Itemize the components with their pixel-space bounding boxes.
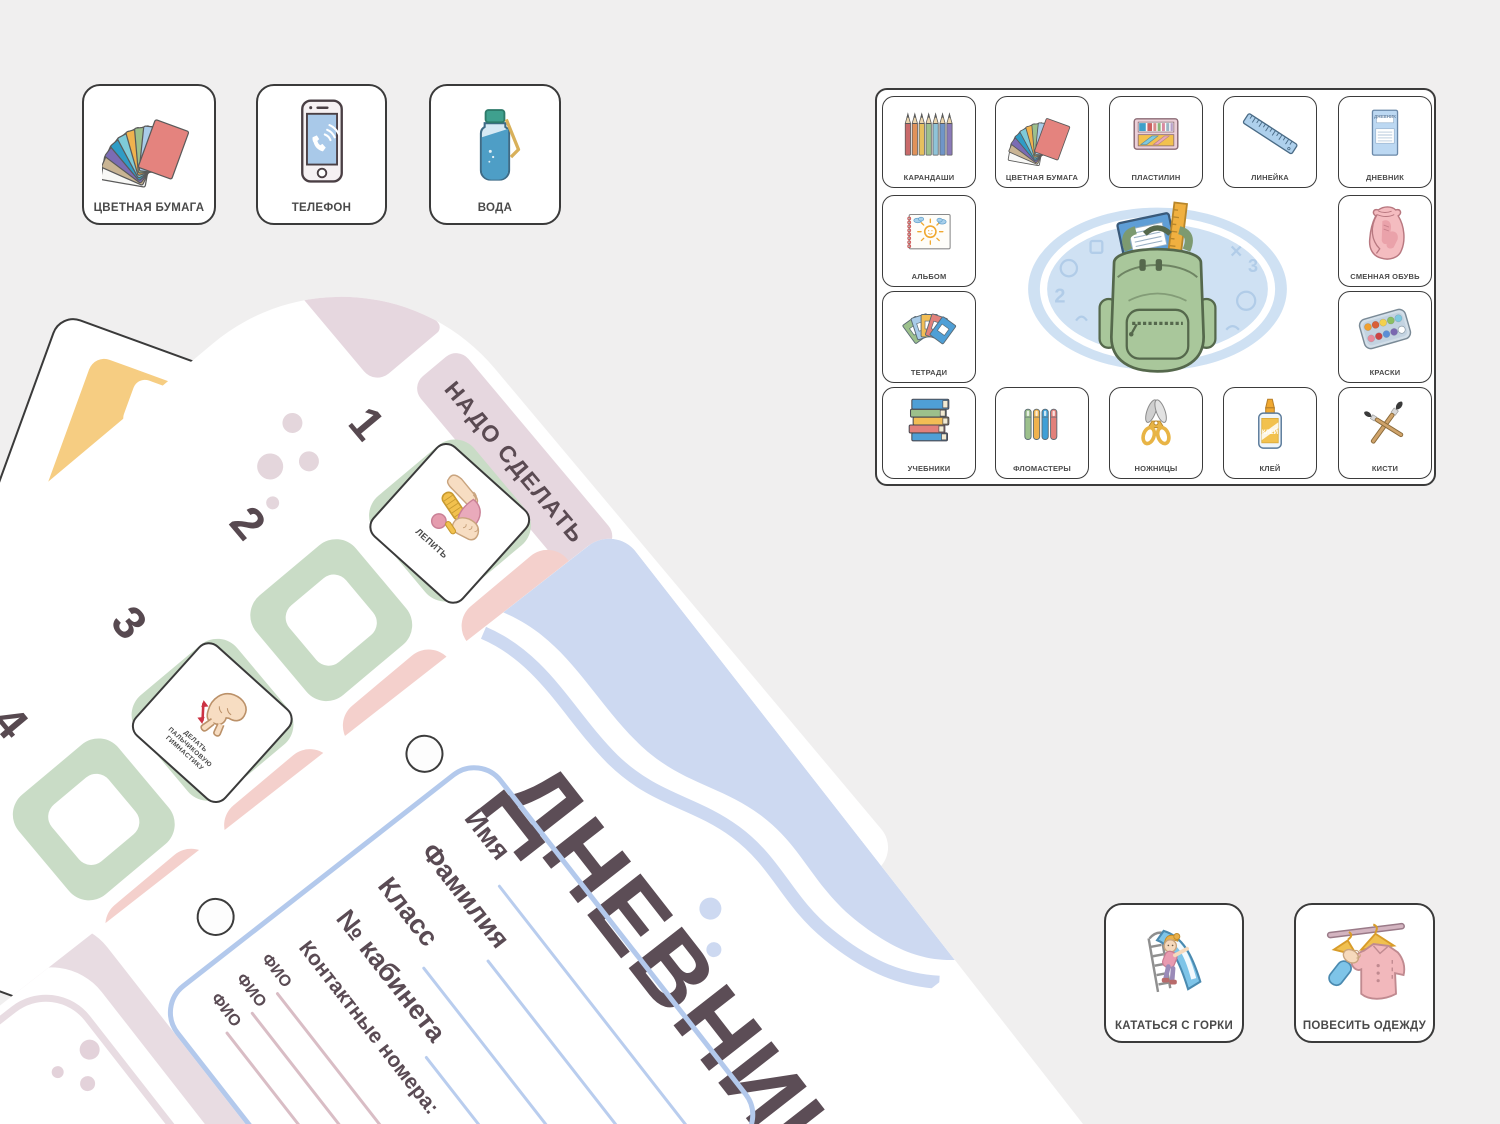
card-label: ДНЕВНИК — [1339, 173, 1431, 182]
card-label: КАРАНДАШИ — [883, 173, 975, 182]
header-corner-piece — [275, 215, 443, 385]
diary-notebook-text: ДНЕВНИК — [1339, 114, 1431, 119]
slide-icon — [1112, 909, 1236, 1011]
punch-hole — [189, 890, 242, 943]
colored-paper-icon — [90, 90, 208, 193]
fio-label: ФИО — [232, 971, 269, 1012]
diary-notebook-icon — [1347, 99, 1423, 169]
colored-paper-icon — [1004, 99, 1080, 169]
fio-label: ФИО — [207, 990, 244, 1031]
card-label: ФЛОМАСТЕРЫ — [996, 464, 1088, 473]
card-label: ПОВЕСИТЬ ОДЕЖДУ — [1296, 1020, 1433, 1032]
card-label: НОЖНИЦЫ — [1110, 464, 1202, 473]
ruler-icon — [1232, 99, 1308, 169]
poster-card-brushes: КИСТИ — [1338, 387, 1432, 479]
fio-label: ФИО — [257, 951, 294, 992]
glue-icon — [1232, 390, 1308, 460]
school-supplies-poster: 2 3 КАРАНДАШИ ЦВЕТНАЯ БУМАГА ПЛАСТИЛИН — [875, 88, 1436, 486]
punch-hole — [398, 727, 451, 780]
card-label: ТЕТРАДИ — [883, 368, 975, 377]
phone-icon — [264, 90, 379, 193]
decor-dot — [278, 409, 306, 437]
field-name: Имя — [458, 804, 516, 867]
printables-collage: ЧЕТВЕРГ МЕСЯЦ ЧИСЛО 1 — [0, 0, 1500, 1124]
poster-card-glue: КЛЕЙ КЛЕЙ — [1223, 387, 1317, 479]
photo-card-phone: ТЕЛЕФОН — [256, 84, 387, 225]
card-label: ЦВЕТНАЯ БУМАГА — [84, 202, 214, 214]
decor-dot — [295, 447, 323, 475]
photo-card-water: ВОДА — [429, 84, 561, 225]
field-line — [486, 959, 653, 1124]
poster-card-scissors: НОЖНИЦЫ — [1109, 387, 1203, 479]
field-line — [424, 1055, 568, 1124]
shoe-bag-icon — [1347, 198, 1423, 268]
water-bottle-icon — [437, 90, 553, 193]
poster-card-textbooks: УЧЕБНИКИ — [882, 387, 976, 479]
slot-window — [42, 767, 146, 871]
poster-card-shoe-bag: СМЕННАЯ ОБУВЬ — [1338, 195, 1432, 287]
backpack-icon: 2 3 — [1010, 194, 1305, 384]
poster-card-album: АЛЬБОМ — [882, 195, 976, 287]
card-label: ПЛАСТИЛИН — [1110, 173, 1202, 182]
poster-card-diary: ДНЕВНИК ДНЕВНИК — [1338, 96, 1432, 188]
photo-card-hang-clothes: ПОВЕСИТЬ ОДЕЖДУ — [1294, 903, 1435, 1043]
card-label: СМЕННАЯ ОБУВЬ — [1339, 272, 1431, 281]
poster-card-ruler: ЛИНЕЙКА — [1223, 96, 1317, 188]
poster-card-colored-paper: ЦВЕТНАЯ БУМАГА — [995, 96, 1089, 188]
photo-card-slide: КАТАТЬСЯ С ГОРКИ — [1104, 903, 1244, 1043]
plasticine-icon — [1118, 99, 1194, 169]
card-label: ЛИНЕЙКА — [1224, 173, 1316, 182]
card-label: КЛЕЙ — [1224, 464, 1316, 473]
paints-icon — [1347, 294, 1423, 364]
card-label: УЧЕБНИКИ — [883, 464, 975, 473]
poster-card-notebooks: ТЕТРАДИ — [882, 291, 976, 383]
card-label: КИСТИ — [1339, 464, 1431, 473]
poster-card-paints: КРАСКИ — [1338, 291, 1432, 383]
poster-card-plasticine: ПЛАСТИЛИН — [1109, 96, 1203, 188]
glue-bottle-text: КЛЕЙ — [1224, 430, 1316, 436]
card-label: АЛЬБОМ — [883, 272, 975, 281]
decor-dot — [252, 448, 289, 485]
notebooks-icon — [891, 294, 967, 364]
markers-icon — [1004, 390, 1080, 460]
row-number-3: 3 — [90, 582, 170, 663]
poster-card-markers: ФЛОМАСТЕРЫ — [995, 387, 1089, 479]
pencils-icon — [891, 99, 967, 169]
brushes-icon — [1347, 390, 1423, 460]
photo-card-colored-paper: ЦВЕТНАЯ БУМАГА — [82, 84, 216, 225]
svg-text:2: 2 — [1054, 286, 1065, 308]
card-label: КРАСКИ — [1339, 368, 1431, 377]
row-number-2: 2 — [208, 482, 288, 563]
scissors-icon — [1118, 390, 1194, 460]
album-icon — [891, 198, 967, 268]
row-number-4: 4 — [0, 682, 51, 763]
poster-card-pencils: КАРАНДАШИ — [882, 96, 976, 188]
card-label: КАТАТЬСЯ С ГОРКИ — [1106, 1020, 1242, 1032]
card-label: ВОДА — [431, 202, 559, 214]
slot-window — [279, 568, 383, 672]
card-label: ТЕЛЕФОН — [258, 202, 385, 214]
textbooks-icon — [891, 390, 967, 460]
card-label: ЦВЕТНАЯ БУМАГА — [996, 173, 1088, 182]
hang-clothes-icon — [1302, 909, 1427, 1011]
row-number-1: 1 — [327, 383, 407, 464]
